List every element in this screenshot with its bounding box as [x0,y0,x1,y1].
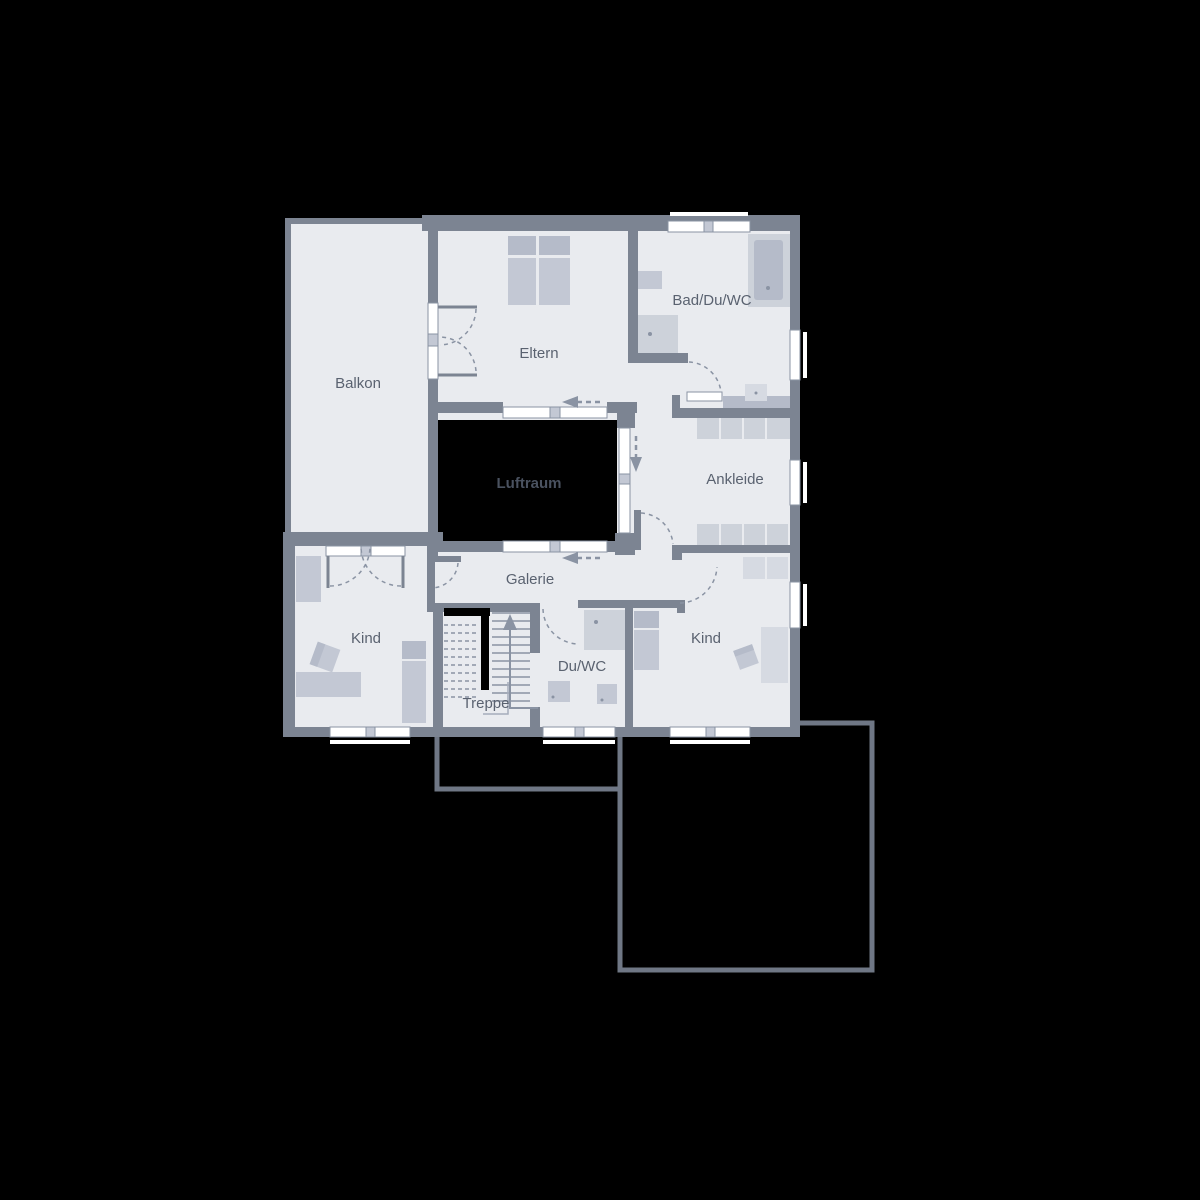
wall-eltern-bad [628,231,638,363]
wall-duwc-kind [625,600,633,727]
balcony-wall-top [285,218,428,224]
wall-kind-right-top [625,600,677,608]
wall-ankleide-bottom [672,545,790,553]
window-bad-top-post [704,221,713,232]
label-balkon: Balkon [335,375,381,392]
floor-plan-drawing: Balkon Eltern Bad/Du/WC Ankleide Luftrau… [0,0,1200,1200]
wall-ankleide-bottom-step [672,545,682,560]
balcony-wall-left [285,218,291,532]
stair-stringer-side [481,608,489,690]
wall-kind-right-top-cap [677,600,685,613]
bathtub [748,234,790,307]
wall-duwc-top [578,600,628,608]
shower-duwc [584,610,625,650]
bed-eltern [508,236,570,305]
window-duwc-bottom-sill [543,740,615,744]
window-bad-right-sill [803,332,807,378]
wall-corner-bottom-right-railing [615,533,635,555]
railing-right-post [619,474,630,484]
window-kind-right-wall-sill [803,584,807,626]
wall-ankleide-top [672,408,800,418]
label-ankleide: Ankleide [706,471,764,488]
window-kind-right-bottom-sill [670,740,750,744]
toilet-duwc [597,684,617,704]
label-kind-left: Kind [351,630,381,647]
door-leaf [687,392,722,401]
railing-bottom-post [550,541,560,552]
wall-galerie-left [427,546,435,612]
window-ankleide-right [790,460,800,505]
label-du-wc: Du/WC [558,658,607,675]
shower-bad [638,315,678,353]
window-kind-right-wall [790,582,800,628]
wall-left-lower [283,532,295,737]
washbasin-duwc [548,681,570,702]
label-eltern: Eltern [519,345,558,362]
door-leaf [435,556,461,562]
window-kind-right-bottom-post [706,727,715,737]
wall-stair-right-upper [530,603,540,653]
wall-left-upper [428,215,438,562]
floor-plan-canvas: Balkon Eltern Bad/Du/WC Ankleide Luftrau… [0,0,1200,1200]
window-kind-left-bottom-post [366,727,375,737]
wall-luftraum-bottom-left [428,541,503,552]
desk-kind-left [296,672,361,697]
window-bad-top-sill [670,212,748,216]
wall-eltern-bottom-left [428,402,503,413]
desk-kind-right [761,627,788,683]
window-bad-right [790,330,800,380]
wardrobe-ankleide-bottom [697,524,788,545]
label-galerie: Galerie [506,571,554,588]
wall-corner-top-right-railing [617,408,635,428]
wall-stair-left [433,603,443,737]
wall-balcony-bottom [283,532,443,546]
railing-top-post [550,407,560,418]
wardrobe-kind-right-alcove [743,557,788,579]
window-ankleide-right-sill [803,462,807,503]
window-duwc-bottom-post [575,727,584,737]
bed-kind-left [402,641,426,723]
label-luftraum: Luftraum [497,475,562,492]
label-kind-right: Kind [691,630,721,647]
wall-stair-right-lower [530,707,540,737]
wardrobe-ankleide-top [697,418,790,439]
bed-kind-right [634,611,659,670]
wall-bad-bottom [628,353,688,363]
wardrobe-kind-left [296,556,321,602]
door-eltern-balkon-post [428,334,438,346]
label-bad-du-wc: Bad/Du/WC [672,292,751,309]
door-leaf [634,510,641,550]
toilet [638,271,662,289]
label-treppe: Treppe [463,695,510,712]
window-kind-left-bottom-sill [330,740,410,744]
